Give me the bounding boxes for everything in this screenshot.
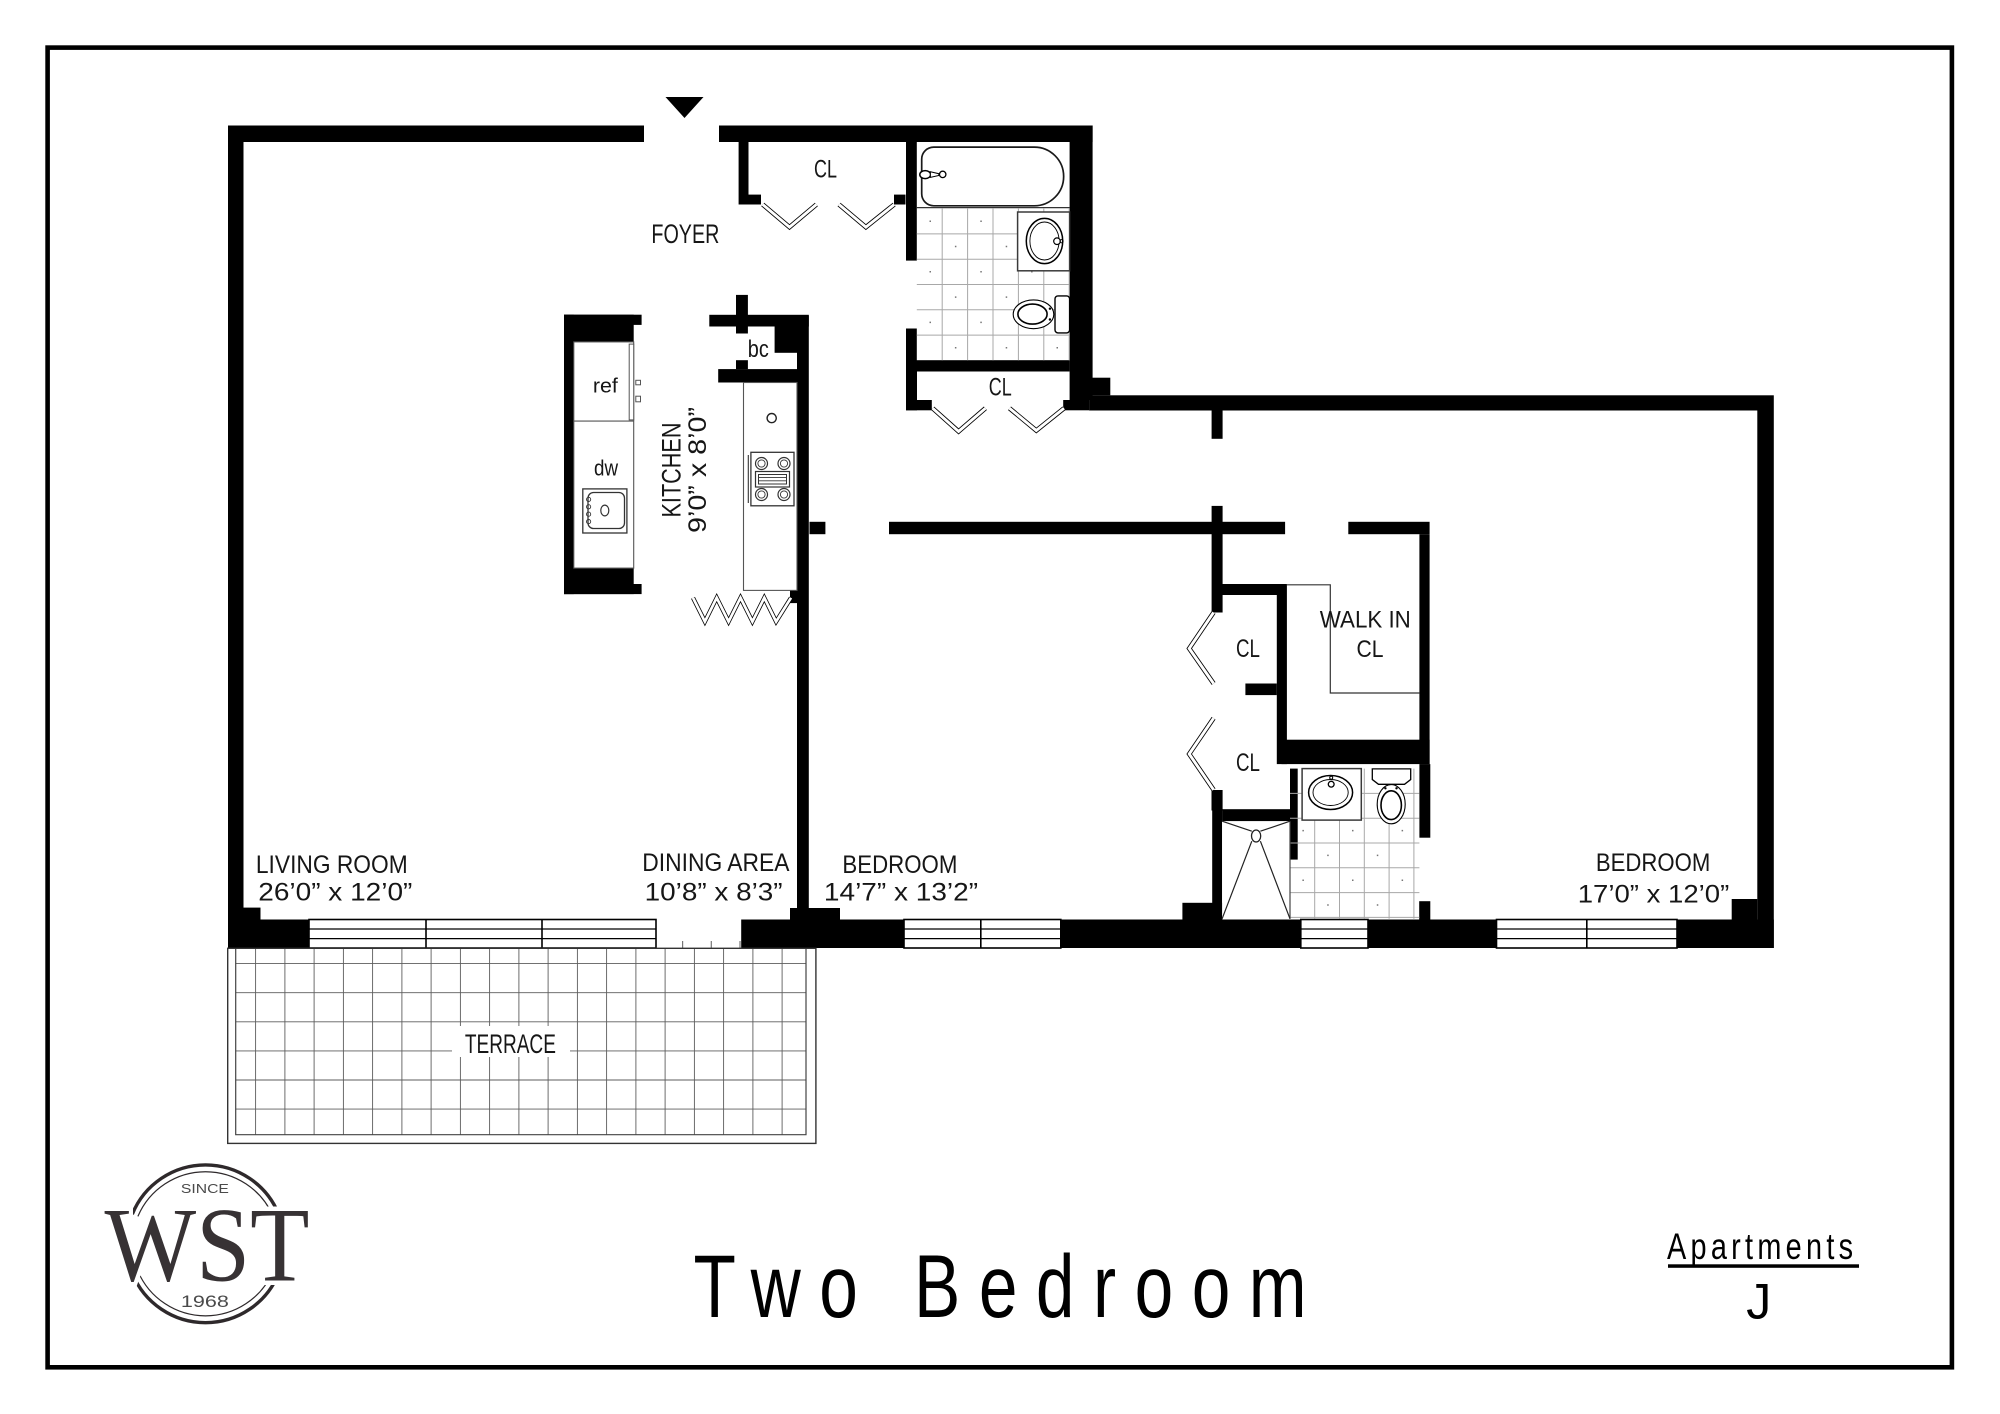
- svg-text:9’0” x 8’0”: 9’0” x 8’0”: [684, 407, 712, 533]
- svg-text:BEDROOM: BEDROOM: [1596, 849, 1710, 877]
- svg-text:BEDROOM: BEDROOM: [842, 851, 957, 879]
- svg-text:CL: CL: [989, 373, 1012, 401]
- svg-text:10’8” x 8’3”: 10’8” x 8’3”: [645, 879, 783, 907]
- svg-text:26’0” x 12’0”: 26’0” x 12’0”: [258, 879, 412, 907]
- svg-text:WST: WST: [105, 1187, 310, 1304]
- svg-text:CL: CL: [814, 156, 837, 184]
- svg-text:bc: bc: [748, 336, 769, 363]
- svg-text:LIVING ROOM: LIVING ROOM: [256, 851, 408, 879]
- svg-text:Apartments: Apartments: [1667, 1227, 1857, 1268]
- svg-text:J: J: [1746, 1274, 1771, 1330]
- svg-text:CL: CL: [1357, 636, 1384, 663]
- svg-text:TERRACE: TERRACE: [465, 1029, 556, 1059]
- svg-text:CL: CL: [1236, 749, 1260, 777]
- svg-text:17’0” x 12’0”: 17’0” x 12’0”: [1578, 880, 1730, 908]
- svg-text:DINING AREA: DINING AREA: [642, 849, 789, 877]
- svg-text:ref: ref: [593, 376, 618, 398]
- svg-text:14’7” x 13’2”: 14’7” x 13’2”: [824, 879, 978, 907]
- svg-text:Two Bedroom: Two Bedroom: [694, 1237, 1326, 1336]
- svg-text:KITCHEN: KITCHEN: [657, 423, 687, 518]
- svg-text:dw: dw: [594, 455, 618, 480]
- svg-text:CL: CL: [1236, 635, 1260, 663]
- svg-text:FOYER: FOYER: [651, 219, 719, 249]
- svg-text:WALK IN: WALK IN: [1320, 606, 1411, 633]
